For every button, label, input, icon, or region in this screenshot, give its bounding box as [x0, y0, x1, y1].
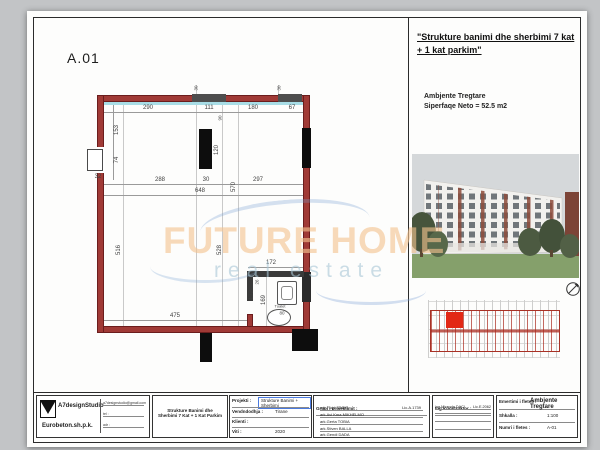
key-plan-highlighted-unit	[446, 312, 463, 328]
sheet-title-line2: + 1 kat parkim"	[417, 45, 579, 56]
dim-label: 475	[170, 313, 180, 319]
contact-line: adr :	[103, 423, 144, 428]
plan-label: A.01	[67, 50, 100, 66]
dim-label: 30	[194, 85, 199, 90]
field-label: Klienti :	[232, 419, 249, 424]
sheet-title-line1: "Strukture banimi dhe sherbimi 7 kat	[417, 32, 579, 43]
blank-rule	[435, 421, 491, 422]
column	[200, 333, 212, 362]
dim-label: 32	[95, 174, 102, 180]
column	[302, 128, 311, 168]
sheet-name: Ambjente Tregtare	[530, 398, 575, 410]
engineer-name: ing.Miranda DACI	[435, 405, 465, 409]
titleblock-fields: Projekti : Strukture Banimi + Sherbimi V…	[229, 395, 312, 438]
dim-label: 169	[261, 295, 267, 305]
team-license: Lic.A.1739	[402, 405, 421, 410]
dim-label: 30	[203, 177, 210, 183]
dim-label: 516	[116, 245, 122, 255]
field-value-year: 2020	[275, 429, 285, 434]
wall-left	[97, 95, 104, 333]
grid-line	[196, 85, 197, 326]
dim-label: 180	[248, 105, 258, 111]
titleblock-team: Grupi i projektimit : ark.Flojd DANO Lic…	[313, 395, 430, 438]
dim-label: 172	[249, 290, 255, 300]
dim-line	[103, 320, 248, 321]
net-area-label: Siperfaqe Neto = 52.5 m2	[424, 103, 507, 110]
dim-line	[103, 195, 304, 196]
toilet-wall-jamb	[247, 314, 253, 327]
field-value-location: Tirane	[275, 409, 288, 414]
dim-label: 297	[253, 177, 263, 183]
dim-label: 290	[143, 105, 153, 111]
grid-line	[123, 104, 124, 326]
sheet-number-label: Numri i fletes :	[499, 425, 530, 430]
blank-rule	[435, 413, 491, 414]
dim-label: 153	[114, 125, 120, 135]
door-niche	[87, 149, 103, 171]
column	[199, 129, 212, 169]
key-plan	[418, 294, 570, 372]
company-name: A7designStudio	[58, 403, 104, 409]
titleblock-sheetinfo: Emertimi i fletes : Ambjente Tregtare Sh…	[496, 395, 578, 438]
dim-line	[103, 112, 304, 113]
dim-label: 74	[114, 157, 120, 164]
unit-type-label: Ambjente Tregtare	[424, 93, 485, 100]
watermark-subtext: real estate	[214, 259, 389, 283]
dim-label: 111	[204, 105, 213, 111]
toilet-room-label: Tualet	[275, 304, 286, 309]
a7-logo-icon	[40, 400, 56, 418]
column	[292, 329, 318, 351]
dim-label: 570	[231, 182, 237, 192]
dim-label: 288	[155, 177, 165, 183]
dim-label: 648	[195, 188, 205, 194]
team-member: ark.Avi Kma MIKHELMO	[320, 412, 423, 418]
team-member: ark.Flojd DANO	[320, 405, 348, 410]
north-arrow-icon	[565, 281, 581, 297]
team-member: ark.Gendi DADA	[320, 432, 423, 437]
dim-label: 80	[279, 311, 284, 316]
blank-rule	[435, 429, 491, 430]
contact-box: a7designstudio@gmail.com tel : adr :	[100, 399, 146, 433]
layout-divider	[408, 17, 409, 392]
watermark-text: FUTURE HOME	[163, 220, 445, 262]
field-label: Projekti :	[232, 398, 251, 403]
wall-segment	[278, 94, 302, 102]
titleblock-top-line	[33, 392, 580, 393]
scale-value: 1:100	[547, 413, 558, 418]
dim-label: 67	[289, 105, 296, 111]
field-label: Viti :	[232, 429, 242, 434]
sink-basin	[281, 286, 293, 300]
company-name-2: Eurobeton.sh.p.k.	[42, 423, 93, 429]
titleblock-project-title: Strukture Banimi dhe Sherbimi 7 Kat + 1 …	[152, 395, 228, 438]
field-label: Vendndodhja :	[232, 409, 263, 414]
contact-line: tel :	[103, 412, 144, 417]
team-member: ark.Gerta TOBIA	[320, 419, 423, 425]
wall-segment	[192, 94, 226, 102]
dim-line	[103, 184, 304, 185]
dim-line	[113, 104, 114, 180]
sheet-number: A-01	[547, 425, 557, 430]
contact-line: a7designstudio@gmail.com	[103, 401, 144, 406]
engineer-license: Lic.E.2062	[473, 405, 491, 409]
scale-label: Shkalla :	[499, 413, 518, 418]
wall-bottom	[97, 326, 310, 333]
dim-label: 90	[218, 115, 223, 120]
dim-label: 30	[277, 85, 282, 90]
titleblock-engineer: Ing.Konstruktor : ing.Miranda DACI Lic.E…	[432, 395, 494, 438]
project-title-line2: Sherbimi 7 Kat + 1 Kat Parkim	[153, 413, 227, 418]
dim-label: 120	[214, 145, 220, 155]
